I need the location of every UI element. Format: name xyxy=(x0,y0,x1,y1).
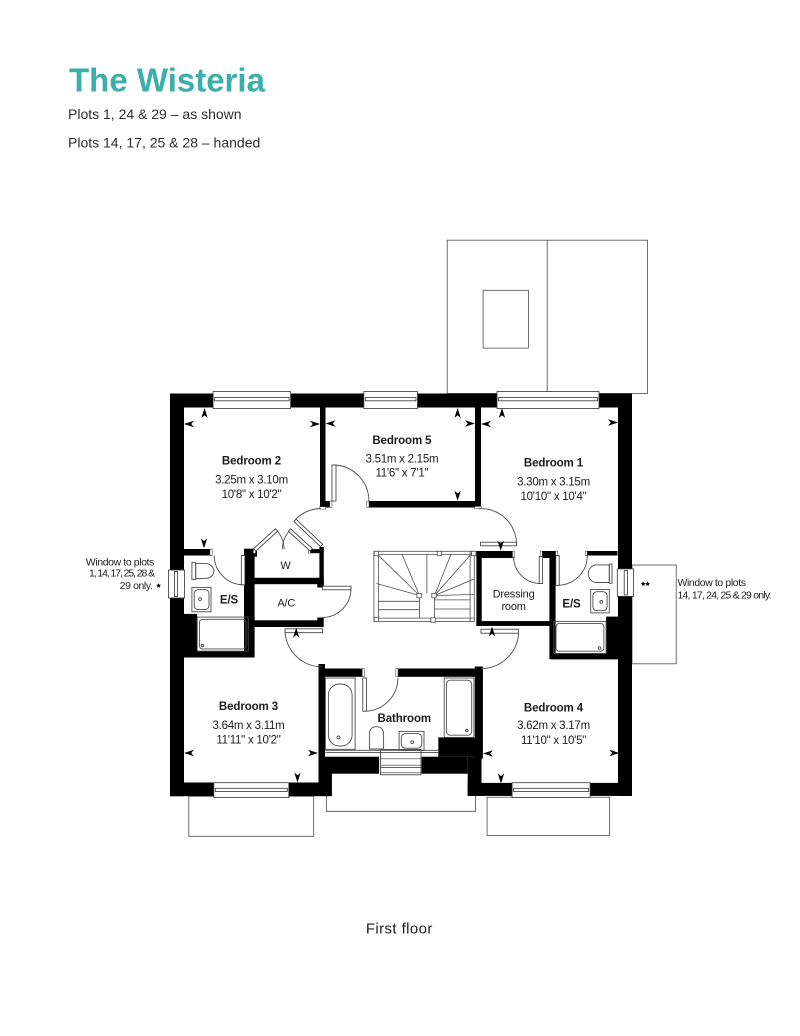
svg-text:Plots 1, 24 & 29 – as shown: Plots 1, 24 & 29 – as shown xyxy=(68,106,242,122)
svg-text:10'10" x 10'4": 10'10" x 10'4" xyxy=(521,491,587,503)
svg-text:3.62m x 3.17m: 3.62m x 3.17m xyxy=(517,720,590,732)
svg-text:3.64m x 3.11m: 3.64m x 3.11m xyxy=(213,720,285,732)
svg-text:11'6" x 7'1": 11'6" x 7'1" xyxy=(375,467,428,479)
svg-text:A/C: A/C xyxy=(277,598,295,610)
svg-text:Bedroom 2: Bedroom 2 xyxy=(222,455,281,467)
svg-text:room: room xyxy=(501,601,525,613)
svg-text:10'8" x 10'2": 10'8" x 10'2" xyxy=(222,489,282,501)
svg-text:E/S: E/S xyxy=(562,599,581,611)
svg-text:Dressing: Dressing xyxy=(493,589,535,601)
svg-text:Plots 14, 17, 25 & 28 – handed: Plots 14, 17, 25 & 28 – handed xyxy=(68,134,260,150)
svg-text:3.51m x 2.15m: 3.51m x 2.15m xyxy=(365,454,438,466)
svg-text:3.30m x 3.15m: 3.30m x 3.15m xyxy=(517,476,590,488)
svg-text:Bedroom 3: Bedroom 3 xyxy=(219,701,278,713)
svg-text:First floor: First floor xyxy=(366,921,433,938)
svg-text:Bedroom 4: Bedroom 4 xyxy=(524,703,584,715)
svg-text:Bedroom 5: Bedroom 5 xyxy=(372,435,432,447)
svg-text:Window to plots: Window to plots xyxy=(678,578,746,589)
svg-text:E/S: E/S xyxy=(220,594,239,606)
svg-text:29 only.: 29 only. xyxy=(120,581,153,592)
svg-text:3.25m x 3.10m: 3.25m x 3.10m xyxy=(215,475,288,487)
svg-text:11'10" x 10'5": 11'10" x 10'5" xyxy=(521,735,586,747)
svg-text:Bedroom 1: Bedroom 1 xyxy=(524,458,584,470)
svg-text:Window to plots: Window to plots xyxy=(86,557,154,568)
svg-text:Bathroom: Bathroom xyxy=(378,713,432,725)
svg-text:14, 17, 24, 25 & 29 only.: 14, 17, 24, 25 & 29 only. xyxy=(678,591,771,602)
svg-text:The Wisteria: The Wisteria xyxy=(69,62,266,99)
svg-text:W: W xyxy=(280,560,291,572)
svg-text:11'11" x 10'2": 11'11" x 10'2" xyxy=(216,734,280,746)
svg-text:1, 14, 17, 25, 28 &: 1, 14, 17, 25, 28 & xyxy=(89,569,155,580)
